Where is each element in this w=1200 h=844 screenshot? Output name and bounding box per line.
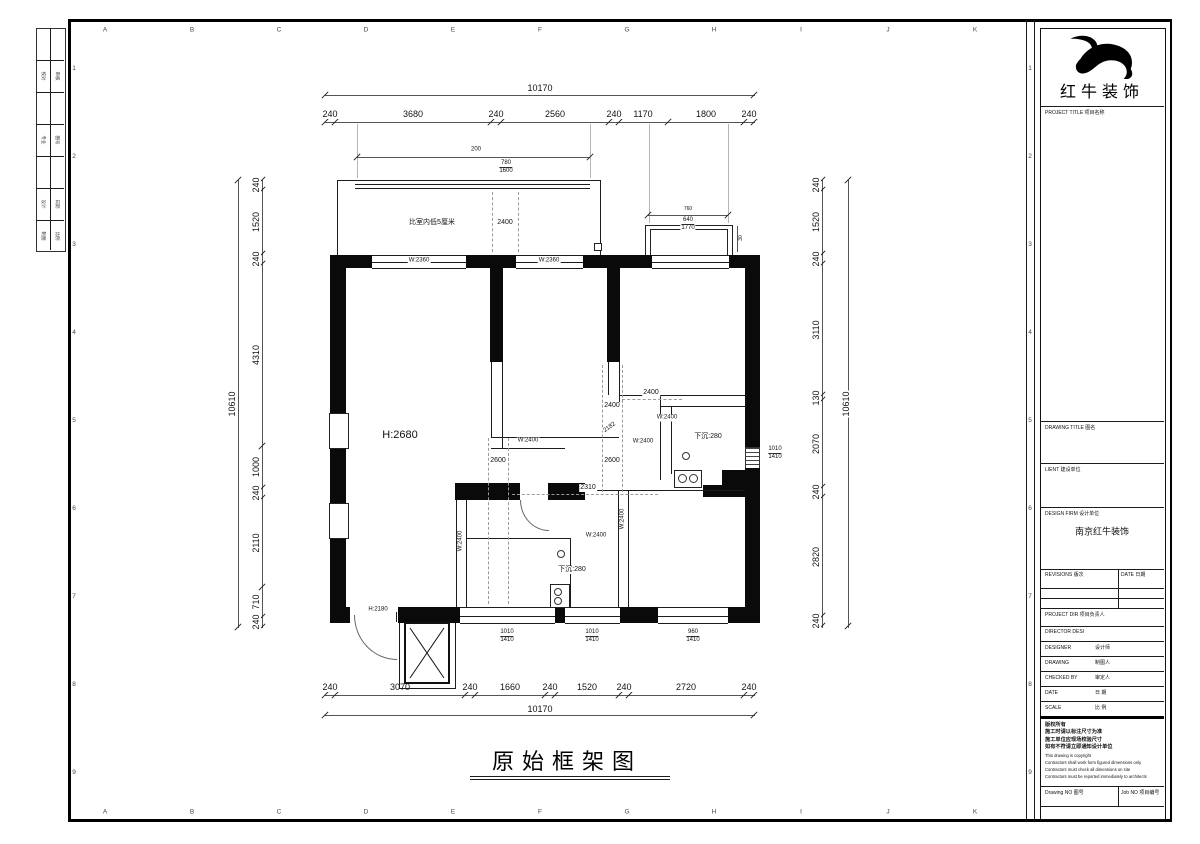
opening-label: W:2400 bbox=[517, 438, 540, 445]
grid-letter: J bbox=[886, 27, 889, 34]
design-firm-value: 南京红牛装饰 bbox=[1075, 525, 1129, 538]
dim-line bbox=[262, 180, 263, 628]
client-label: LIENT 建设单位 bbox=[1045, 467, 1080, 473]
dim-label: 240 bbox=[811, 176, 821, 193]
extension-line bbox=[728, 124, 729, 223]
dim-label: 2110 bbox=[251, 532, 261, 553]
ceiling-height-label: H:2680 bbox=[381, 429, 418, 441]
grid-number: 9 bbox=[72, 770, 76, 776]
partition bbox=[491, 437, 619, 438]
drawing-title-label: DRAWING TITLE 图名 bbox=[1045, 425, 1095, 431]
dim-label: 240 bbox=[461, 682, 478, 692]
dim-tick bbox=[750, 118, 757, 125]
grid-number: 4 bbox=[72, 330, 76, 336]
note-line: Contractors must check all dimensions on… bbox=[1045, 766, 1161, 773]
construction-dash bbox=[508, 438, 509, 604]
balcony-parapet bbox=[355, 184, 590, 185]
sill-dim: 7801600 bbox=[498, 160, 513, 174]
titleblock-line bbox=[1040, 701, 1164, 702]
balcony-parapet bbox=[355, 188, 590, 189]
sheet-border-bottom bbox=[68, 819, 1172, 822]
dim-label: 200 bbox=[470, 147, 482, 154]
dim-label: 240 bbox=[251, 250, 261, 267]
titleblock-line bbox=[1040, 626, 1164, 627]
dim-label: 240 bbox=[487, 109, 504, 119]
dim-label: 10170 bbox=[526, 704, 553, 714]
dim-label: 2720 bbox=[675, 682, 697, 692]
signature-table-line bbox=[36, 92, 64, 93]
signature-cell: 图号 bbox=[54, 136, 60, 145]
signature-table-line bbox=[36, 124, 64, 125]
sill-top: 1010 bbox=[768, 446, 781, 453]
signature-cell: 制图 bbox=[40, 232, 46, 241]
dim-label: 1520 bbox=[576, 682, 598, 692]
grid-letter: B bbox=[190, 809, 194, 816]
opening-label: W:2400 bbox=[620, 508, 627, 531]
sill-dim: 10101410 bbox=[584, 629, 599, 643]
sill-bottom: 1600 bbox=[499, 167, 512, 175]
sill-top: 1010 bbox=[500, 629, 513, 636]
titleblock-thick-line bbox=[1040, 716, 1164, 719]
dim-line bbox=[325, 695, 755, 696]
floor-drain bbox=[682, 452, 690, 460]
partition bbox=[660, 406, 745, 407]
grid-number: 2 bbox=[1028, 154, 1032, 160]
revisions-label: REVISIONS 版次 bbox=[1045, 572, 1084, 578]
titleblock-line bbox=[1040, 786, 1164, 787]
dim-label: 30 bbox=[738, 234, 744, 242]
window bbox=[652, 255, 729, 269]
titleblock-line bbox=[1040, 569, 1164, 570]
grid-number: 4 bbox=[1028, 330, 1032, 336]
elevator-shaft bbox=[404, 622, 450, 684]
window-label: W:2360 bbox=[538, 258, 561, 265]
door-height-label: H:2180 bbox=[367, 607, 388, 614]
wall bbox=[703, 485, 722, 497]
copyright-notes: 版权所有 施工时请以标注尺寸为准 施工单位应现场校验尺寸 如有不符请立即通知设计… bbox=[1045, 722, 1161, 780]
grid-letter: G bbox=[624, 809, 629, 816]
project-dir-label: PROJECT DIR 项目负责人 bbox=[1045, 612, 1105, 618]
sill-bottom: 1410 bbox=[686, 636, 699, 644]
wall-niche bbox=[329, 503, 349, 539]
sill-top: 1010 bbox=[585, 629, 598, 636]
dim-label: 2600 bbox=[489, 457, 507, 465]
dim-label: 240 bbox=[251, 484, 261, 501]
dim-label: 10610 bbox=[227, 390, 237, 417]
titleblock-line bbox=[1040, 686, 1164, 687]
dim-line bbox=[325, 715, 755, 716]
titleblock-line bbox=[1040, 421, 1164, 422]
construction-dash bbox=[622, 365, 623, 492]
extension-line bbox=[590, 124, 591, 178]
grid-number: 7 bbox=[1028, 594, 1032, 600]
grid-letter: D bbox=[364, 809, 369, 816]
signature-cell: 日期 bbox=[54, 200, 60, 209]
partition bbox=[608, 362, 609, 395]
sill-dim: 6401770 bbox=[680, 217, 695, 231]
dim-label: 240 bbox=[740, 109, 757, 119]
wall bbox=[330, 607, 350, 623]
window bbox=[565, 607, 620, 624]
dim-label: 1520 bbox=[251, 211, 261, 233]
wall bbox=[583, 255, 652, 268]
checked-by-label: CHECKED BY bbox=[1045, 675, 1078, 681]
dim-label: 4310 bbox=[251, 344, 261, 366]
dim-label: 10610 bbox=[841, 390, 851, 417]
dim-label: 240 bbox=[541, 682, 558, 692]
wall bbox=[330, 255, 346, 413]
sill-top: 960 bbox=[686, 629, 699, 636]
dim-tick bbox=[844, 622, 851, 629]
signature-cell: 设计 bbox=[40, 200, 46, 209]
grid-letter: I bbox=[800, 27, 802, 34]
window bbox=[658, 607, 728, 624]
dim-label: 2600 bbox=[603, 457, 621, 465]
wall bbox=[398, 607, 460, 623]
wall bbox=[555, 607, 565, 623]
titleblock-line bbox=[1040, 106, 1164, 107]
sill-bottom: 1410 bbox=[768, 453, 781, 461]
titleblock-line bbox=[1040, 588, 1164, 589]
titleblock-line bbox=[1040, 463, 1164, 464]
note-line: Contractors must be reported immediately… bbox=[1045, 773, 1161, 780]
company-logo bbox=[1058, 33, 1146, 79]
grid-letter: A bbox=[103, 809, 107, 816]
wall bbox=[466, 255, 516, 268]
grid-letter: C bbox=[277, 27, 282, 34]
grid-letter: F bbox=[538, 27, 542, 34]
signature-table-line bbox=[36, 188, 64, 189]
title-underline bbox=[470, 776, 670, 777]
stove-burner bbox=[678, 474, 687, 483]
note-line: Contractors shall work form figured dime… bbox=[1045, 759, 1161, 766]
wall bbox=[722, 470, 760, 497]
grid-letter: C bbox=[277, 809, 282, 816]
wall bbox=[728, 607, 760, 623]
titleblock-line bbox=[1040, 507, 1164, 508]
dim-line bbox=[325, 122, 755, 123]
title-underline bbox=[470, 779, 670, 780]
partition bbox=[502, 362, 503, 448]
dim-line bbox=[238, 180, 239, 628]
grid-number: 3 bbox=[1028, 242, 1032, 248]
signature-cell: 比例 bbox=[54, 232, 60, 241]
grid-letter: K bbox=[973, 27, 977, 34]
dim-tick bbox=[750, 91, 757, 98]
construction-dash bbox=[622, 399, 682, 400]
sill-bottom: 1770 bbox=[681, 224, 694, 232]
grid-letter: G bbox=[624, 27, 629, 34]
partition bbox=[466, 538, 570, 539]
grid-letter: H bbox=[712, 27, 717, 34]
grid-number: 8 bbox=[72, 682, 76, 688]
signature-cell: 审核 bbox=[54, 72, 60, 81]
wall bbox=[745, 255, 760, 447]
titleblock-line bbox=[1040, 656, 1164, 657]
dim-label: 130 bbox=[811, 389, 821, 406]
signature-table-line bbox=[36, 220, 64, 221]
titleblock-line bbox=[1040, 608, 1164, 609]
sill-top: 640 bbox=[681, 217, 694, 224]
date-label: DATE bbox=[1045, 690, 1058, 696]
window-label: W:2360 bbox=[408, 258, 431, 265]
fixture-knob bbox=[554, 597, 562, 605]
grid-letter: I bbox=[800, 809, 802, 816]
dim-label: 240 bbox=[811, 483, 821, 500]
window bbox=[460, 607, 555, 624]
floor-drain bbox=[557, 550, 565, 558]
dim-tick bbox=[750, 691, 757, 698]
balcony-wall bbox=[337, 180, 338, 255]
extension-line bbox=[649, 124, 650, 223]
drawing-no-label: Drawing NO 图号 bbox=[1045, 790, 1084, 796]
wall bbox=[620, 607, 658, 623]
dim-tick bbox=[234, 623, 241, 630]
design-firm-label: DESIGN FIRM 设计单位 bbox=[1045, 511, 1099, 517]
opening-label: W:2400 bbox=[585, 533, 608, 540]
sheet-border-top bbox=[68, 19, 1172, 22]
signature-table-line bbox=[36, 156, 64, 157]
window-hatched bbox=[745, 447, 760, 470]
dim-line bbox=[822, 180, 823, 628]
titleblock-line bbox=[1040, 641, 1164, 642]
signature-cell: 校对 bbox=[40, 72, 46, 81]
shaft-wall bbox=[399, 623, 400, 688]
dim-label: 2400 bbox=[496, 219, 514, 227]
dim-line bbox=[357, 157, 590, 158]
entry-door-arc bbox=[354, 615, 397, 660]
dim-label: 2820 bbox=[811, 546, 821, 568]
extension-line bbox=[357, 124, 358, 178]
scale-label-cn: 比 例 bbox=[1095, 705, 1106, 711]
sill-bottom: 1410 bbox=[585, 636, 598, 644]
fixture-knob bbox=[554, 588, 562, 596]
dim-label: 760 bbox=[683, 206, 693, 212]
dim-label: 710 bbox=[251, 593, 261, 610]
dim-label: 1000 bbox=[251, 456, 261, 478]
note-line: 施工时请以标注尺寸为准 bbox=[1045, 729, 1161, 736]
grid-letter: J bbox=[886, 809, 889, 816]
dim-label: 2400 bbox=[642, 389, 660, 397]
partition bbox=[456, 500, 457, 607]
dim-line bbox=[325, 95, 755, 96]
sill-dim: 9601410 bbox=[685, 629, 700, 643]
dim-label: 240 bbox=[251, 176, 261, 193]
dim-label: 1520 bbox=[811, 211, 821, 233]
signature-table-divider bbox=[50, 28, 51, 250]
partition bbox=[619, 362, 620, 406]
grid-number: 3 bbox=[72, 242, 76, 248]
grid-number: 5 bbox=[72, 418, 76, 424]
partition bbox=[585, 490, 745, 491]
sill-top: 780 bbox=[499, 160, 512, 167]
job-no-label: Job NO 项目编号 bbox=[1121, 790, 1159, 796]
dim-label: 1660 bbox=[499, 682, 521, 692]
partition bbox=[466, 500, 467, 607]
note-line: 如有不符请立即通知设计单位 bbox=[1045, 744, 1161, 751]
sheet-border-left bbox=[68, 19, 71, 822]
balcony-note: 比室内低5厘米 bbox=[408, 219, 456, 227]
plan-title: 原始框架图 bbox=[492, 744, 642, 776]
grid-number: 6 bbox=[1028, 506, 1032, 512]
bay-window-inner bbox=[650, 229, 728, 257]
grid-letter: E bbox=[451, 27, 455, 34]
dim-label: 2182 bbox=[602, 421, 619, 436]
construction-dash bbox=[518, 192, 519, 252]
dim-tick bbox=[750, 711, 757, 718]
grid-strip-line bbox=[1034, 20, 1035, 819]
construction-dash bbox=[492, 192, 493, 252]
shaft-wall bbox=[455, 623, 456, 688]
dim-label: 3110 bbox=[811, 319, 821, 340]
partition bbox=[628, 490, 629, 607]
sill-dim: 10101410 bbox=[499, 629, 514, 643]
opening-label: W:2400 bbox=[632, 439, 655, 446]
sill-bottom: 1410 bbox=[500, 636, 513, 644]
dim-label: 240 bbox=[811, 250, 821, 267]
door-jamb bbox=[396, 612, 397, 622]
designer-label: DESIGNER bbox=[1045, 645, 1071, 651]
titleblock-line bbox=[1040, 806, 1164, 807]
opening-label: W:2400 bbox=[656, 415, 679, 422]
grid-strip-line bbox=[1026, 20, 1027, 819]
dim-label: 1170 bbox=[632, 109, 653, 119]
date-label-cn: 日 期 bbox=[1095, 690, 1106, 696]
titleblock-divider bbox=[1118, 786, 1119, 806]
partition bbox=[491, 362, 492, 437]
dim-label: 2400 bbox=[603, 402, 621, 410]
sill-dim: 10101410 bbox=[767, 446, 782, 460]
grid-number: 8 bbox=[1028, 682, 1032, 688]
dim-label: 2560 bbox=[544, 109, 566, 119]
signature-table-line bbox=[36, 60, 64, 61]
partition bbox=[660, 395, 661, 480]
date-col-label: DATE 日期 bbox=[1121, 572, 1145, 578]
sunken-label: 下沉:280 bbox=[557, 566, 587, 574]
note-line: This drawing is copyright bbox=[1045, 752, 1161, 759]
dim-label: 240 bbox=[740, 682, 757, 692]
wall bbox=[330, 447, 346, 503]
sheet-border-right bbox=[1170, 19, 1172, 822]
bath-door-arc bbox=[520, 500, 549, 531]
grid-number: 1 bbox=[1028, 66, 1032, 72]
dim-label: 1800 bbox=[695, 109, 717, 119]
dim-label: 240 bbox=[811, 612, 821, 629]
dim-label: 2070 bbox=[811, 433, 821, 455]
sunken-label: 下沉:280 bbox=[693, 433, 723, 441]
grid-number: 5 bbox=[1028, 418, 1032, 424]
signature-cell: 专业 bbox=[40, 136, 46, 145]
checked-by-label-cn: 审定人 bbox=[1095, 675, 1110, 681]
construction-dash bbox=[512, 494, 658, 495]
grid-number: 1 bbox=[72, 66, 76, 72]
grid-letter: D bbox=[364, 27, 369, 34]
balcony-parapet bbox=[337, 180, 600, 181]
drawing-sheet: A B C D E F G H I J K A B C D E F G H I … bbox=[0, 0, 1200, 844]
dim-label: 240 bbox=[615, 682, 632, 692]
wall bbox=[607, 268, 620, 362]
dim-label: 240 bbox=[251, 613, 261, 630]
grid-number: 9 bbox=[1028, 770, 1032, 776]
dim-label: 240 bbox=[605, 109, 622, 119]
titleblock-line bbox=[1040, 598, 1164, 599]
shaft-wall bbox=[399, 688, 456, 689]
wall-niche bbox=[329, 413, 349, 449]
dim-label: 3680 bbox=[402, 109, 424, 119]
grid-letter: B bbox=[190, 27, 194, 34]
drawing-label: DRAWING bbox=[1045, 660, 1069, 666]
partition bbox=[620, 395, 745, 396]
opening-label: W:2400 bbox=[458, 530, 465, 553]
dim-line bbox=[648, 215, 728, 216]
dim-label: 2310 bbox=[579, 484, 597, 492]
wall bbox=[490, 268, 503, 362]
designer-label-cn: 设计师 bbox=[1095, 645, 1110, 651]
dim-label: 240 bbox=[321, 682, 338, 692]
scale-label: SCALE bbox=[1045, 705, 1061, 711]
grid-letter: H bbox=[712, 809, 717, 816]
grid-number: 6 bbox=[72, 506, 76, 512]
grid-number: 7 bbox=[72, 594, 76, 600]
titleblock-line bbox=[1040, 671, 1164, 672]
grid-letter: A bbox=[103, 27, 107, 34]
stove-burner bbox=[689, 474, 698, 483]
director-label: DIRECTOR DESI bbox=[1045, 629, 1084, 635]
company-name: 红牛装饰 bbox=[1060, 78, 1144, 102]
grid-number: 2 bbox=[72, 154, 76, 160]
grid-letter: E bbox=[451, 809, 455, 816]
drawing-label-cn: 制图人 bbox=[1095, 660, 1110, 666]
project-title-label: PROJECT TITLE 项目名称 bbox=[1045, 110, 1105, 116]
dim-label: 10170 bbox=[526, 83, 553, 93]
grid-letter: F bbox=[538, 809, 542, 816]
partition bbox=[491, 448, 565, 449]
grid-letter: K bbox=[973, 809, 977, 816]
dim-label: 240 bbox=[321, 109, 338, 119]
drain-symbol bbox=[594, 243, 602, 251]
